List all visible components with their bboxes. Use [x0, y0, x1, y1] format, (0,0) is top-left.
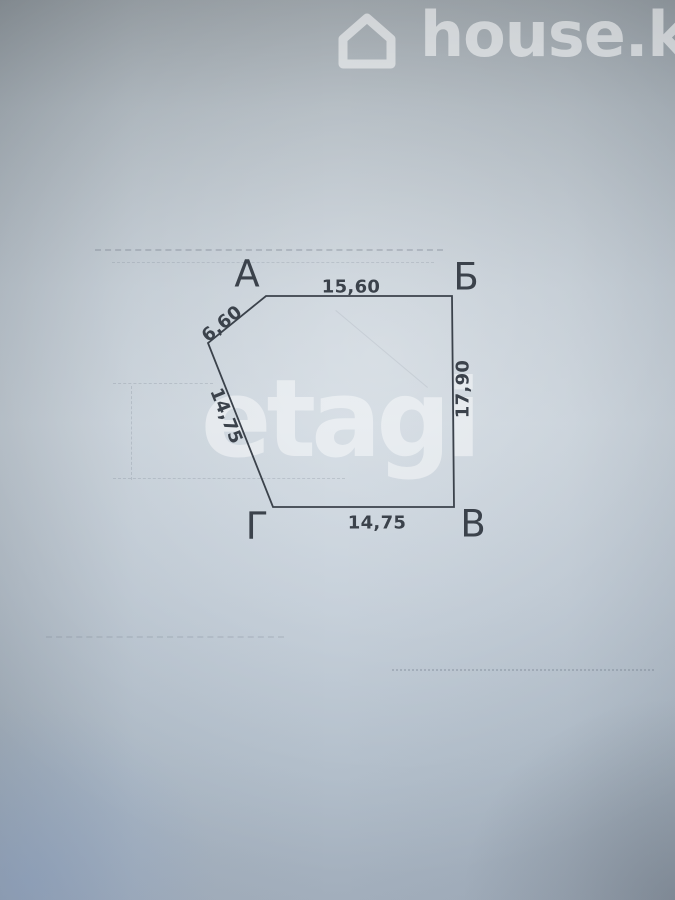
- vertex-label: Б: [453, 256, 478, 299]
- edge-length-label: 17,90: [453, 360, 474, 418]
- edge-length-label: 15,60: [322, 277, 380, 298]
- edge-length-label: 14,75: [205, 385, 246, 447]
- vertex-label: А: [234, 253, 259, 296]
- edge-length-label: 6,60: [198, 301, 247, 346]
- plot-boundary-outline: [208, 296, 454, 507]
- vertex-label: В: [460, 503, 485, 546]
- edge-length-label: 14,75: [348, 513, 406, 534]
- scanned-plot-plan-photo: house.kg etagi АБВГ15,606,6014,7517,9014…: [0, 0, 675, 900]
- vertex-label: Г: [246, 505, 269, 548]
- plot-plan-diagram: АБВГ15,606,6014,7517,9014,75: [0, 0, 675, 900]
